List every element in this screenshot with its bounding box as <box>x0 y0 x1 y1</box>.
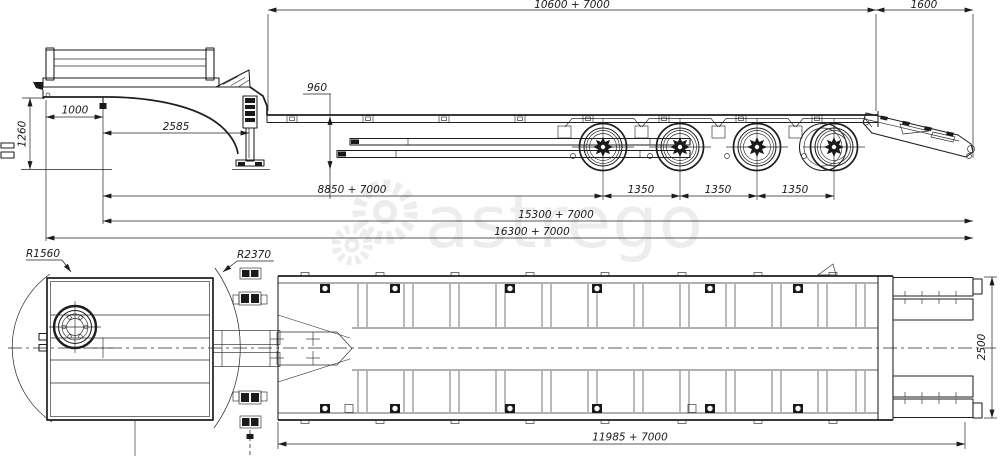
dim-kingpin-rear: 15300 + 7000 <box>518 209 594 221</box>
dim-front-radius: R1560 <box>26 248 60 260</box>
gooseneck-plan <box>39 278 213 456</box>
deck-plan <box>278 264 893 424</box>
ramp-latch <box>818 264 836 275</box>
dim-front-overhang: 1000 <box>62 105 89 117</box>
drawing-sheet: astrego <box>0 0 1000 458</box>
dim-axle-gap-2: 1350 <box>705 184 732 196</box>
dim-width: 2500 <box>976 333 988 360</box>
watermark-text: astrego <box>425 180 704 264</box>
landing-gear-plan <box>233 268 267 457</box>
dim-gooseneck: 2585 <box>163 121 190 133</box>
neck-plan <box>213 331 320 367</box>
dim-overall: 16300 + 7000 <box>494 226 570 238</box>
dim-platform: 11985 + 7000 <box>592 432 668 444</box>
gooseneck-box <box>33 48 219 97</box>
dim-upper-main: 10600 + 7000 <box>534 0 610 11</box>
dim-rear-overhang: 1600 <box>911 0 938 11</box>
plan-view: R1560 R2370 2500 11985 + 7000 <box>8 248 997 457</box>
dim-deck-height: 960 <box>307 82 327 94</box>
trailer-drawing: astrego <box>0 0 1000 458</box>
low-deck <box>267 111 878 127</box>
dim-gooseneck-radius: R2370 <box>237 249 271 261</box>
dim-axle-gap-1: 1350 <box>628 184 655 196</box>
gooseneck-profile <box>43 87 267 154</box>
gooseneck-wedge <box>216 70 250 87</box>
rear-ramp <box>863 113 975 159</box>
kingpin <box>100 97 107 109</box>
dim-kingpin-axle1: 8850 + 7000 <box>318 184 387 196</box>
dim-coupling-height: 1260 <box>17 120 29 147</box>
kingpin-plan <box>49 301 113 358</box>
dim-axle-gap-3: 1350 <box>782 184 809 196</box>
